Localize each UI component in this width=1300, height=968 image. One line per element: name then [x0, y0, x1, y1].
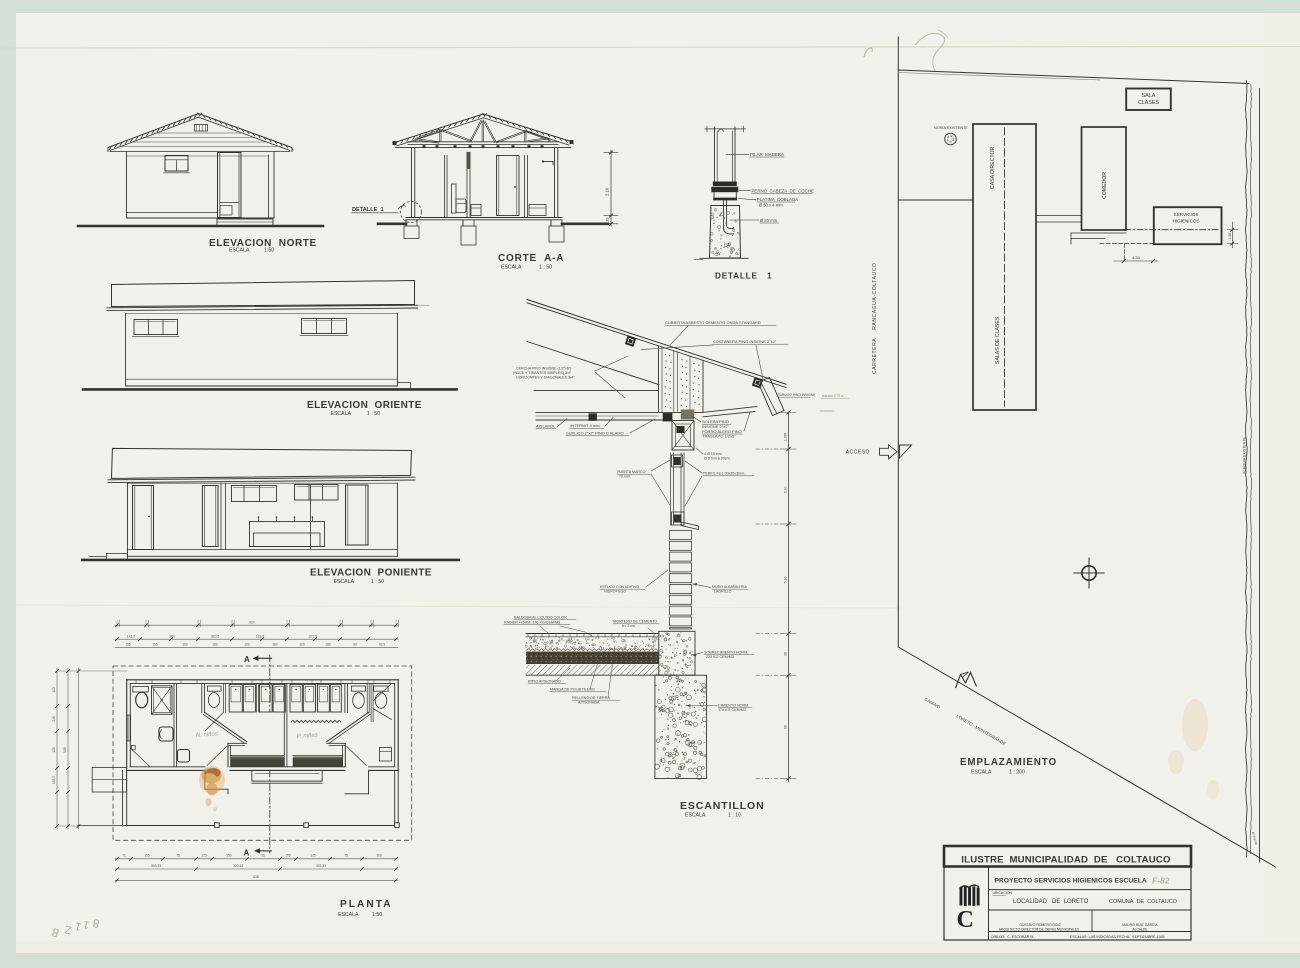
svg-text:155: 155: [144, 854, 150, 858]
svg-text:372.5: 372.5: [309, 634, 318, 638]
svg-text:Ø 50 x 4 mm.: Ø 50 x 4 mm.: [759, 203, 784, 208]
svg-text:ARQUITECTO DIRECTOR DE OBRAS M: ARQUITECTO DIRECTOR DE OBRAS MUNICIPALES: [999, 927, 1080, 931]
svg-text:70 mm.: 70 mm.: [619, 475, 631, 479]
svg-text:A: A: [244, 849, 250, 858]
svg-text:CUBIERTA ASBESTO CEMENTO ONDA: CUBIERTA ASBESTO CEMENTO ONDA STANDARD: [665, 320, 761, 325]
svg-text:155: 155: [125, 643, 131, 647]
svg-text:ESCALAS: LAS INDICADAS: ESCALAS: LAS INDICADAS: [1070, 935, 1117, 939]
svg-text:CORTE A-A: CORTE A-A: [498, 253, 564, 264]
svg-text:ALCALDE: ALCALDE: [1132, 927, 1148, 931]
svg-text:TARUGO PINO INSIGNE: TARUGO PINO INSIGNE: [778, 393, 816, 397]
svg-text:LADRILLO: LADRILLO: [714, 590, 732, 594]
svg-text:100: 100: [52, 747, 56, 753]
svg-text:303.33: 303.33: [151, 864, 161, 868]
svg-text:75: 75: [176, 854, 180, 858]
svg-text:ELEVACION NORTE: ELEVACION NORTE: [209, 238, 317, 249]
svg-text:FECHA: SEPTIEMBRE-1985: FECHA: SEPTIEMBRE-1985: [1117, 935, 1165, 939]
svg-text:NORIA EXISTENTE: NORIA EXISTENTE: [934, 126, 968, 130]
svg-text:1 : 50: 1 : 50: [367, 411, 380, 417]
svg-text:DIBUJO: C. ESCOBAR M.: DIBUJO: C. ESCOBAR M.: [991, 935, 1034, 939]
svg-text:(NACE Y TIRANTES SIMPLES) 3/4": (NACE Y TIRANTES SIMPLES) 3/4": [513, 371, 572, 375]
svg-text:320.5: 320.5: [211, 634, 220, 638]
svg-text:180: 180: [272, 643, 278, 647]
svg-text:1:50: 1:50: [264, 248, 274, 254]
svg-text:HIDROFUGO: HIDROFUGO: [604, 590, 626, 594]
svg-text:71: 71: [122, 854, 126, 858]
svg-text:638: 638: [253, 875, 259, 879]
svg-text:UBICACION: UBICACION: [993, 891, 1013, 895]
svg-text:e= 2 cm: e= 2 cm: [622, 624, 635, 628]
svg-text:COMUNA DE COLTAUCO: COMUNA DE COLTAUCO: [1109, 899, 1178, 905]
svg-text:155: 155: [152, 643, 158, 647]
svg-text:180: 180: [169, 634, 175, 638]
svg-text:4.30: 4.30: [1132, 255, 1141, 260]
svg-text:COMEDOR: COMEDOR: [1102, 172, 1108, 199]
svg-text:CARRETERA RANCAGUA-COLTAUCO: CARRETERA RANCAGUA-COLTAUCO: [872, 263, 878, 374]
svg-text:HORIZONTES Y DIAGONALES 3/4": HORIZONTES Y DIAGONALES 3/4": [516, 375, 575, 379]
svg-text:ACCESO: ACCESO: [846, 450, 870, 456]
svg-text:SALAS DE CLASES: SALAS DE CLASES: [995, 316, 1001, 364]
svg-text:PUERTA MARCO: PUERTA MARCO: [617, 470, 646, 474]
svg-text:SUPLICO 2"x2" PINO D ALAMO: SUPLICO 2"x2" PINO D ALAMO: [566, 431, 624, 436]
svg-text:1 : 50: 1 : 50: [539, 265, 552, 271]
svg-text:225 KG CEM/M3: 225 KG CEM/M3: [706, 655, 734, 659]
svg-text:Ø 6 mm a 20cm.: Ø 6 mm a 20cm.: [704, 457, 731, 461]
svg-text:303.33: 303.33: [316, 864, 326, 868]
svg-text:PILAR MADERA: PILAR MADERA: [750, 152, 784, 157]
svg-text:PERFIL Fe L 30x30x3mm.: PERFIL Fe L 30x30x3mm.: [703, 472, 745, 476]
svg-text:125: 125: [201, 854, 207, 858]
svg-text:MANGA DE POLIETILENO: MANGA DE POLIETILENO: [550, 688, 595, 692]
svg-text:60: 60: [784, 725, 788, 729]
svg-text:A: A: [244, 655, 250, 664]
svg-text:ESCALA: ESCALA: [331, 411, 352, 417]
svg-text:2.16: 2.16: [605, 187, 610, 196]
svg-text:CLASES: CLASES: [1138, 100, 1160, 106]
svg-text:1:50: 1:50: [372, 912, 382, 918]
svg-text:RELLENO DE TIERRA: RELLENO DE TIERRA: [572, 696, 610, 700]
svg-text:ILUSTRE MUNICIPALIDAD DE C: ILUSTRE MUNICIPALIDAD DE COLTAUCO: [961, 854, 1171, 865]
svg-text:1 : 10: 1 : 10: [728, 813, 741, 819]
svg-text:1.98: 1.98: [1228, 233, 1232, 240]
svg-text:170 KG CEM/M3: 170 KG CEM/M3: [718, 708, 746, 712]
svg-text:ESCANTILLON: ESCANTILLON: [680, 800, 765, 812]
svg-text:MAURO RUIZ GARCIA: MAURO RUIZ GARCIA: [1122, 923, 1158, 927]
svg-text:PERNO CABEZA DE COCHE: PERNO CABEZA DE COCHE: [752, 188, 815, 193]
svg-text:180: 180: [325, 643, 331, 647]
svg-text:F-82: F-82: [1152, 876, 1170, 886]
svg-text:INTERNIT 4 mm.: INTERNIT 4 mm.: [570, 423, 601, 428]
svg-text:AISLAPOL: AISLAPOL: [536, 424, 556, 429]
svg-text:90: 90: [353, 643, 357, 647]
svg-text:ESCALA: ESCALA: [685, 813, 706, 819]
svg-text:C: C: [957, 907, 974, 933]
svg-text:COSTANERA PINO INSIGNE 2"x2": COSTANERA PINO INSIGNE 2"x2": [713, 339, 777, 344]
svg-text:DETALLE 1: DETALLE 1: [715, 272, 772, 281]
svg-text:100: 100: [299, 643, 305, 647]
svg-text:ESCALA: ESCALA: [334, 579, 355, 585]
svg-text:MORTERO DE CEMENTO: MORTERO DE CEMENTO: [613, 620, 657, 624]
svg-text:ESCALA: ESCALA: [501, 265, 522, 271]
svg-text:ELEVACION PONIENTE: ELEVACION PONIENTE: [310, 568, 432, 579]
svg-text:100: 100: [244, 643, 250, 647]
svg-text:MURO ALBAÑILERIA: MURO ALBAÑILERIA: [712, 584, 748, 589]
svg-text:SALA: SALA: [1142, 93, 1156, 99]
svg-text:75: 75: [344, 854, 348, 858]
svg-text:4 Ø 10 mm: 4 Ø 10 mm: [704, 452, 722, 456]
svg-text:RADIER HORM. 170 KG/CEM/M3: RADIER HORM. 170 KG/CEM/M3: [504, 621, 560, 625]
svg-text:EMPLAZAMIENTO: EMPLAZAMIENTO: [960, 757, 1057, 768]
svg-text:LOCALIDAD DE LORETO: LOCALIDAD DE LORETO: [1013, 899, 1089, 905]
svg-text:155: 155: [226, 854, 232, 858]
svg-text:1 : 200: 1 : 200: [1009, 770, 1025, 776]
svg-text:CASA DIRECTOR: CASA DIRECTOR: [990, 146, 996, 189]
svg-text:HIGIENICOS: HIGIENICOS: [1172, 219, 1199, 224]
svg-text:155: 155: [285, 854, 291, 858]
svg-text:ESCALA: ESCALA: [338, 912, 359, 918]
svg-text:PLATINA DOBLADA: PLATINA DOBLADA: [757, 197, 798, 202]
svg-text:143.5: 143.5: [127, 634, 136, 638]
svg-text:55: 55: [261, 854, 265, 858]
svg-text:PROYECTO SERVICIOS HIGIENICOS: PROYECTO SERVICIOS HIGIENICOS ESCUELA: [995, 878, 1147, 885]
svg-text:5.10: 5.10: [784, 577, 788, 584]
svg-text:ESCALA: ESCALA: [971, 770, 992, 776]
svg-text:ELEVACION ORIENTE: ELEVACION ORIENTE: [307, 400, 422, 411]
svg-text:ESCALA: ESCALA: [229, 248, 250, 254]
svg-text:CIMIENTO HORM.: CIMIENTO HORM.: [718, 704, 749, 708]
svg-text:920: 920: [249, 621, 255, 625]
svg-text:1 : 50: 1 : 50: [371, 579, 384, 585]
svg-text:192.5: 192.5: [52, 776, 56, 784]
svg-text:320.33: 320.33: [233, 864, 243, 868]
svg-text:505: 505: [63, 747, 67, 753]
svg-text:30: 30: [784, 652, 788, 656]
svg-text:ESTUCO CON ADITIVO: ESTUCO CON ADITIVO: [600, 585, 639, 589]
svg-text:92.5: 92.5: [379, 643, 385, 647]
svg-text:Ø 20 mm.: Ø 20 mm.: [760, 218, 778, 223]
svg-text:180: 180: [212, 643, 218, 647]
svg-text:.23: .23: [606, 218, 610, 223]
svg-text:125: 125: [310, 854, 316, 858]
svg-text:DETALLE 1: DETALLE 1: [352, 207, 384, 213]
svg-text:PLANTA: PLANTA: [340, 899, 393, 910]
svg-text:SOBRECIMIENTO HORM.: SOBRECIMIENTO HORM.: [704, 651, 748, 655]
svg-text:entrada 0.75 m: entrada 0.75 m: [822, 394, 844, 398]
svg-text:GUSTAVO ROMERO ROIZ: GUSTAVO ROMERO ROIZ: [1019, 923, 1060, 927]
svg-text:100: 100: [376, 854, 382, 858]
svg-text:246: 246: [52, 716, 56, 722]
svg-text:3.10: 3.10: [784, 487, 788, 494]
svg-text:SERVICIOS: SERVICIOS: [1174, 212, 1199, 217]
svg-text:BALDOSA AL LIQUIDO COLOR: BALDOSA AL LIQUIDO COLOR: [514, 615, 567, 619]
svg-text:132.5: 132.5: [256, 634, 265, 638]
svg-text:100: 100: [182, 643, 188, 647]
svg-text:ACEQUIA EXISTENTE: ACEQUIA EXISTENTE: [1243, 436, 1247, 474]
svg-text:1.289: 1.289: [784, 433, 788, 442]
svg-text:CERCHA PINO INSIGNE (1/2"x6"): CERCHA PINO INSIGNE (1/2"x6"): [516, 366, 571, 370]
svg-text:120: 120: [52, 687, 56, 693]
svg-text:APISONADA: APISONADA: [578, 701, 600, 705]
